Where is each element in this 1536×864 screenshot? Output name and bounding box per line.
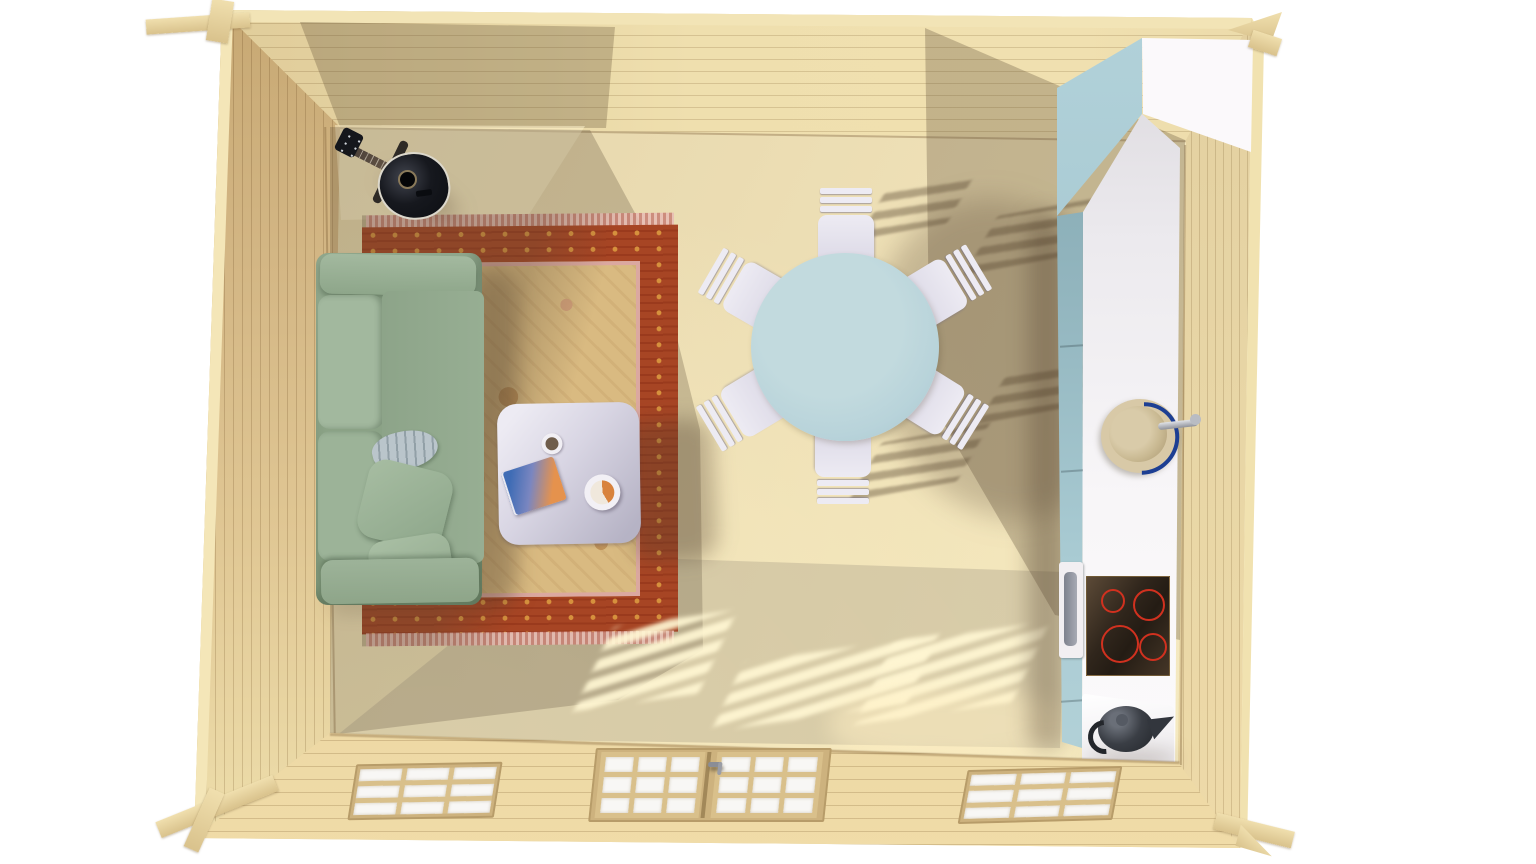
- window-pane: [1069, 771, 1116, 783]
- window-pane: [400, 802, 444, 815]
- door-light-patch: [830, 688, 1060, 760]
- window-right: [958, 766, 1123, 824]
- door-panes: [600, 757, 700, 813]
- door-panel-left: [595, 752, 706, 818]
- chair-slat: [817, 498, 869, 504]
- oven-window: [1064, 572, 1077, 646]
- chair-backrest: [817, 480, 869, 504]
- window-pane: [666, 798, 696, 813]
- kettle-lid: [1116, 714, 1128, 726]
- coffee-table: [497, 402, 641, 545]
- burner: [1101, 625, 1139, 663]
- window-pane: [450, 784, 494, 797]
- bowl-contents: [590, 480, 614, 504]
- window-pane: [786, 777, 816, 792]
- sofa: [316, 253, 482, 605]
- window-pane: [750, 798, 780, 813]
- window-pane: [788, 757, 818, 772]
- door: [588, 748, 832, 822]
- window-panes: [353, 767, 497, 815]
- chair-backrest: [820, 188, 872, 212]
- window-pane: [670, 757, 700, 772]
- window-pane: [447, 801, 491, 814]
- window-pane: [716, 798, 746, 813]
- window-pane: [353, 802, 397, 815]
- chair-slat: [820, 206, 872, 212]
- window-pane: [668, 777, 698, 792]
- window-pane: [406, 768, 450, 781]
- burner: [1139, 633, 1167, 661]
- window-pane: [600, 798, 630, 813]
- guitar-soundhole: [398, 170, 417, 189]
- chair-slat: [817, 480, 869, 486]
- window-panes: [964, 771, 1117, 819]
- cooktop: [1086, 576, 1170, 676]
- window-pane: [970, 774, 1017, 786]
- window-pane: [1013, 805, 1060, 817]
- room-render: [0, 0, 1536, 864]
- window-pane: [1020, 772, 1067, 784]
- window-pane: [637, 757, 667, 772]
- mug-contents: [545, 437, 558, 450]
- chair-slat: [820, 197, 872, 203]
- window-pane: [720, 757, 750, 772]
- window-pane: [356, 785, 400, 798]
- window-pane: [718, 777, 748, 792]
- guitar: [336, 128, 448, 220]
- window-pane: [967, 790, 1014, 802]
- chair-slat: [820, 188, 872, 194]
- oven: [1059, 562, 1083, 658]
- window-pane: [403, 785, 447, 798]
- sofa-armrest-bottom: [321, 558, 480, 605]
- door-panel-right: [711, 752, 824, 818]
- window-pane: [1063, 804, 1110, 816]
- window-pane: [635, 777, 665, 792]
- dining-table: [751, 253, 939, 441]
- kettle: [1090, 698, 1174, 764]
- window-pane: [783, 798, 813, 813]
- window-pane: [754, 757, 784, 772]
- window-pane: [1016, 789, 1063, 801]
- window-pane: [359, 768, 403, 781]
- window-left: [347, 762, 502, 821]
- faucet-base: [1190, 414, 1201, 425]
- window-pane: [964, 806, 1011, 818]
- sink-bowl: [1109, 406, 1167, 462]
- door-panes: [716, 757, 818, 813]
- sink: [1101, 399, 1179, 473]
- burner: [1101, 589, 1125, 613]
- window-pane: [453, 767, 497, 780]
- window-pane: [1066, 787, 1113, 799]
- window-pane: [604, 757, 634, 772]
- burner: [1133, 589, 1165, 621]
- sofa-back-cushion: [318, 295, 384, 429]
- window-pane: [633, 798, 663, 813]
- chair-slat: [817, 489, 869, 495]
- window-pane: [602, 777, 632, 792]
- window-pane: [752, 777, 782, 792]
